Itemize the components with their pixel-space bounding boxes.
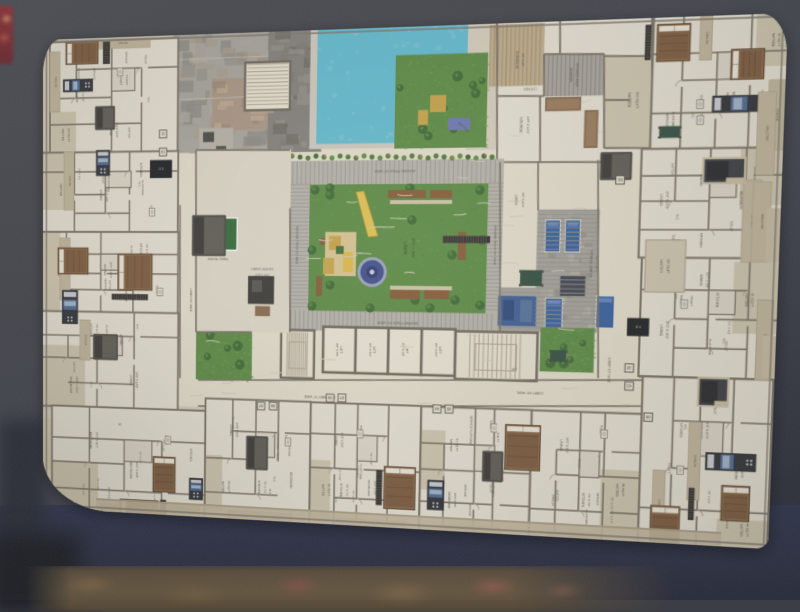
- svg-text:01: 01: [618, 177, 623, 182]
- svg-text:7'0" X 4'0": 7'0" X 4'0": [82, 483, 86, 495]
- svg-text:7'0" X 4'0": 7'0" X 4'0": [338, 468, 342, 481]
- svg-text:203 SQ.FT: 203 SQ.FT: [635, 92, 640, 109]
- svg-text:10'2" X 10'8": 10'2" X 10'8": [135, 462, 139, 479]
- svg-text:TOILET: TOILET: [577, 458, 582, 469]
- svg-text:14'0" X 14'0": 14'0" X 14'0": [135, 372, 139, 389]
- svg-text:KITCHEN: KITCHEN: [139, 163, 143, 177]
- svg-text:TOILET: TOILET: [276, 452, 280, 462]
- svg-text:LIFT: LIFT: [372, 347, 376, 354]
- svg-text:BED ROOM: BED ROOM: [129, 462, 133, 479]
- svg-text:10: 10: [161, 149, 165, 153]
- svg-text:LOBBY 6'0" WIDE: LOBBY 6'0" WIDE: [189, 288, 193, 312]
- svg-text:LOUNGE: LOUNGE: [519, 117, 524, 134]
- svg-text:LIFT: LIFT: [438, 347, 443, 354]
- svg-text:7'0" X 4'0": 7'0" X 4'0": [77, 168, 81, 181]
- svg-text:W.C.: W.C.: [334, 497, 338, 504]
- svg-text:7'0" X 7'0": 7'0" X 7'0": [587, 493, 592, 507]
- svg-text:BED ROOM: BED ROOM: [69, 377, 73, 394]
- svg-text:W.C.: W.C.: [147, 97, 151, 103]
- svg-text:CHALJA: CHALJA: [551, 494, 556, 506]
- svg-text:26'6" X 34'9": 26'6" X 34'9": [411, 238, 416, 259]
- svg-text:20'8" X 22'4": 20'8" X 22'4": [75, 377, 79, 393]
- svg-text:TOILET: TOILET: [119, 75, 123, 86]
- svg-text:E.D: E.D: [159, 167, 164, 171]
- svg-text:03: 03: [627, 383, 632, 388]
- svg-text:10'0" X 10'9": 10'0" X 10'9": [665, 191, 670, 210]
- svg-text:LIVING: LIVING: [334, 434, 338, 446]
- svg-text:PLATFORM: PLATFORM: [107, 177, 111, 192]
- svg-text:BEDROOM: BEDROOM: [289, 472, 293, 489]
- svg-text:W.C.: W.C.: [268, 489, 272, 495]
- svg-text:DINING: DINING: [119, 335, 123, 347]
- svg-text:TOILET: TOILET: [356, 467, 360, 477]
- svg-text:7'0" X 4'0": 7'0" X 4'0": [231, 416, 235, 429]
- svg-text:UP: UP: [512, 367, 517, 372]
- svg-text:07: 07: [340, 395, 344, 399]
- svg-text:KITCHEN: KITCHEN: [189, 449, 193, 462]
- svg-text:LAWN: LAWN: [403, 242, 409, 255]
- svg-text:8'0" X 6'0": 8'0" X 6'0": [368, 343, 372, 357]
- svg-text:LIVING: LIVING: [659, 194, 664, 207]
- svg-text:NATTER: NATTER: [771, 33, 776, 47]
- svg-text:69 SQ.FT: 69 SQ.FT: [227, 481, 231, 494]
- svg-text:SERVICE: SERVICE: [463, 484, 468, 497]
- svg-text:16'0" X 14'0": 16'0" X 14'0": [109, 262, 113, 279]
- svg-text:04: 04: [435, 406, 440, 411]
- svg-text:TOILET: TOILET: [144, 54, 148, 64]
- svg-text:06: 06: [328, 395, 332, 399]
- svg-text:NATTER: NATTER: [739, 524, 744, 537]
- svg-text:87: 87: [259, 403, 263, 407]
- svg-text:NATTER: NATTER: [555, 490, 560, 502]
- svg-text:NATTER: NATTER: [659, 260, 664, 273]
- svg-text:23'2" X 11'2": 23'2" X 11'2": [95, 432, 99, 448]
- svg-text:NATTER: NATTER: [72, 362, 76, 373]
- svg-text:14'9" X 10'3": 14'9" X 10'3": [526, 116, 531, 134]
- svg-text:11: 11: [161, 131, 165, 135]
- svg-text:JOGGING TRACK 6'0" WIDE: JOGGING TRACK 6'0" WIDE: [295, 226, 300, 265]
- svg-text:SERVICE: SERVICE: [124, 51, 128, 64]
- svg-text:14'8" X 9'8": 14'8" X 9'8": [340, 432, 344, 448]
- svg-text:7'0" X 4'0": 7'0" X 4'0": [369, 452, 373, 465]
- svg-text:NATTER: NATTER: [221, 481, 225, 493]
- svg-text:CHAJJA: CHAJJA: [118, 41, 128, 46]
- svg-text:8'0" X 6'0": 8'0" X 6'0": [434, 343, 439, 357]
- svg-text:11'9" X 10'3": 11'9" X 10'3": [705, 421, 710, 439]
- svg-text:7'0" X 7'0": 7'0" X 7'0": [345, 484, 349, 497]
- svg-text:BED ROOM: BED ROOM: [89, 432, 93, 449]
- svg-text:W.C.: W.C.: [273, 476, 277, 482]
- svg-text:02: 02: [627, 365, 632, 370]
- svg-text:LIFT: LIFT: [405, 347, 409, 354]
- svg-text:NATTER: NATTER: [108, 280, 112, 291]
- svg-text:85 SQ.FT: 85 SQ.FT: [327, 484, 331, 497]
- svg-text:NATTER: NATTER: [59, 184, 63, 197]
- svg-text:7'0" X 4'0": 7'0" X 4'0": [138, 451, 142, 464]
- svg-text:CHAJJA: CHAJJA: [68, 176, 72, 187]
- svg-text:8'0" X 6'0": 8'0" X 6'0": [335, 343, 339, 356]
- svg-text:NATTER: NATTER: [615, 484, 620, 497]
- svg-text:KITCHEN: KITCHEN: [257, 480, 261, 494]
- svg-text:INDOOR GAMES: INDOOR GAMES: [251, 267, 273, 271]
- svg-text:NATTER: NATTER: [321, 484, 325, 496]
- svg-text:LIFT: LIFT: [339, 347, 343, 354]
- svg-text:CHAJJA: CHAJJA: [54, 77, 58, 88]
- svg-text:10'0" X 9'0": 10'0" X 9'0": [453, 493, 458, 508]
- svg-text:7'0" X 7'0": 7'0" X 7'0": [263, 481, 267, 494]
- svg-text:NATTER: NATTER: [61, 129, 65, 142]
- svg-text:WC: WC: [118, 424, 122, 426]
- svg-text:158 SQ.FT: 158 SQ.FT: [67, 128, 71, 143]
- svg-text:10'0" X 16'6": 10'0" X 16'6": [665, 321, 670, 339]
- svg-text:KITCHEN: KITCHEN: [715, 293, 720, 308]
- svg-text:7'0" X 4'0": 7'0" X 4'0": [351, 490, 355, 503]
- svg-text:JOGGING TRACK 6'0" WIDE: JOGGING TRACK 6'0" WIDE: [374, 169, 415, 174]
- svg-text:7'0" X 4'0": 7'0" X 4'0": [96, 478, 100, 490]
- svg-text:7'0"X4'0": 7'0"X4'0": [125, 74, 129, 85]
- svg-text:DINING: DINING: [699, 274, 704, 287]
- svg-text:W.C.: W.C.: [89, 382, 93, 388]
- svg-text:BEDROOM: BEDROOM: [447, 492, 452, 509]
- svg-text:LIVING: LIVING: [659, 324, 664, 337]
- svg-text:81 SQ.FT: 81 SQ.FT: [455, 439, 460, 452]
- svg-text:SERVICE: SERVICE: [92, 68, 96, 81]
- svg-text:JOGGING TRACK 6'0" WIDE: JOGGING TRACK 6'0" WIDE: [378, 321, 419, 326]
- svg-text:14'8" X 9'8": 14'8" X 9'8": [235, 422, 239, 437]
- svg-text:W.C.: W.C.: [136, 324, 140, 330]
- svg-text:F.D: F.D: [635, 325, 640, 330]
- svg-text:LIVING: LIVING: [99, 190, 103, 201]
- svg-text:KITCHEN: KITCHEN: [699, 233, 704, 248]
- svg-text:NATTER: NATTER: [449, 439, 454, 452]
- svg-text:TOILET: TOILET: [489, 483, 494, 494]
- svg-text:05: 05: [646, 414, 651, 419]
- svg-text:BEDROOM: BEDROOM: [367, 480, 372, 497]
- svg-text:NATTER: NATTER: [744, 293, 749, 306]
- svg-text:PLATFORM: PLATFORM: [141, 180, 145, 195]
- svg-text:SERVICE: SERVICE: [104, 278, 108, 290]
- svg-text:W.C.: W.C.: [132, 336, 136, 342]
- svg-text:SERVICE: SERVICE: [77, 68, 81, 81]
- svg-text:LOBBY: LOBBY: [514, 194, 519, 205]
- svg-text:PLATFORM: PLATFORM: [276, 434, 280, 449]
- svg-text:8'0" X 6'0": 8'0" X 6'0": [401, 343, 406, 357]
- svg-text:LOBBY 6'0" WIDE: LOBBY 6'0" WIDE: [517, 391, 544, 396]
- svg-text:14'0" X 9'0": 14'0" X 9'0": [565, 437, 570, 453]
- svg-text:TOILET: TOILET: [496, 432, 501, 443]
- svg-text:88: 88: [271, 403, 275, 407]
- svg-text:9'9" X 14'0": 9'9" X 14'0": [115, 122, 119, 137]
- svg-text:CHANGING: CHANGING: [515, 51, 520, 70]
- svg-text:CHAJJA: CHAJJA: [84, 335, 88, 346]
- svg-text:KITCHEN: KITCHEN: [581, 493, 586, 507]
- svg-text:SERVICE: SERVICE: [468, 503, 473, 516]
- svg-text:SERVICE PLATFORM: SERVICE PLATFORM: [469, 416, 474, 445]
- svg-text:LIVING: LIVING: [103, 265, 107, 276]
- svg-text:SERVICE: SERVICE: [107, 487, 111, 499]
- svg-text:LIVING: LIVING: [559, 439, 564, 451]
- svg-text:24'0" X 16'2": 24'0" X 16'2": [254, 273, 269, 277]
- svg-text:NATTER: NATTER: [127, 127, 131, 138]
- svg-text:KITCHEN: KITCHEN: [339, 483, 343, 497]
- svg-text:05: 05: [447, 406, 452, 411]
- svg-text:TABLE TENNIS: TABLE TENNIS: [208, 257, 229, 261]
- svg-text:LIVING: LIVING: [129, 375, 133, 386]
